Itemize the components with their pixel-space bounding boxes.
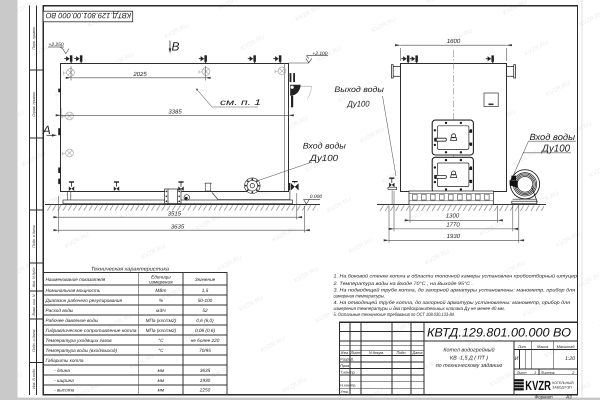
svg-text:+2.250: +2.250 <box>49 42 64 48</box>
svg-text:KVZR: KVZR <box>525 378 551 393</box>
svg-text:Подп. и дата: Подп. и дата <box>32 225 36 248</box>
svg-text:Лит.: Лит. <box>517 345 527 349</box>
svg-text:измерения температуры и два: измерения температуры и два предохраните… <box>334 306 506 312</box>
svg-text:1:20: 1:20 <box>565 356 575 362</box>
svg-text:Дата: Дата <box>411 351 422 355</box>
svg-text:N докум.: N докум. <box>369 351 384 355</box>
svg-text:1300: 1300 <box>446 212 460 219</box>
svg-text:Вход воды: Вход воды <box>530 132 576 142</box>
svg-text:Пров.: Пров. <box>340 364 350 368</box>
svg-text:1: 1 <box>534 371 536 375</box>
svg-text:МВт: МВт <box>155 288 166 293</box>
svg-text:Разраб.: Разраб. <box>340 357 354 361</box>
svg-text:1930: 1930 <box>447 233 461 240</box>
svg-text:Масса: Масса <box>537 345 548 349</box>
svg-text:Листов: Листов <box>540 371 555 375</box>
svg-text:А: А <box>42 123 51 137</box>
svg-text:Формат: Формат <box>535 395 553 400</box>
svg-text:Гидравлическое сопротивление к: Гидравлическое сопротивление котла <box>46 328 137 333</box>
svg-text:- длина: - длина <box>54 368 70 373</box>
svg-text:Номинальная мощность: Номинальная мощность <box>46 288 101 293</box>
svg-text:Наименование показателя: Наименование показателя <box>46 277 106 282</box>
svg-text:5. Остальные технические тр: 5. Остальные технические требования по О… <box>334 312 456 318</box>
svg-text:+2.100: +2.100 <box>312 51 327 57</box>
svg-text:1930: 1930 <box>200 378 211 383</box>
svg-text:Единицы: Единицы <box>151 274 171 279</box>
svg-text:%: % <box>159 298 163 303</box>
svg-text:Выход воды: Выход воды <box>334 85 384 94</box>
svg-text:3385: 3385 <box>168 109 182 116</box>
svg-text:Диапазон рабочего регулировани: Диапазон рабочего регулирования <box>45 298 123 303</box>
svg-text:Инв. N подл.: Инв. N подл. <box>32 368 36 389</box>
svg-text:КВТД.129.801.00.000 ВО: КВТД.129.801.00.000 ВО <box>46 11 132 20</box>
svg-text:мм: мм <box>158 388 165 393</box>
svg-text:мм: мм <box>158 368 165 373</box>
svg-text:КВ -1,5 Д ( ПТ ): КВ -1,5 Д ( ПТ ) <box>450 355 488 361</box>
svg-text:3635: 3635 <box>171 224 185 231</box>
svg-text:Расход воды: Расход воды <box>46 308 74 313</box>
svg-text:3. На подводящей трубе кот: 3. На подводящей трубе котла, до запорно… <box>334 288 576 294</box>
svg-text:Инв. N дубл.: Инв. N дубл. <box>32 267 36 288</box>
svg-text:Котел водогрейный: Котел водогрейный <box>443 348 494 354</box>
svg-text:2025: 2025 <box>132 71 147 78</box>
svg-text:- ширина: - ширина <box>54 378 74 383</box>
svg-text:КОТЕЛЬНЫЙ: КОТЕЛЬНЫЙ <box>552 380 574 385</box>
svg-text:- высота: - высота <box>54 388 75 393</box>
svg-text:Утв.: Утв. <box>340 390 349 394</box>
svg-text:измерения: измерения <box>149 280 173 285</box>
svg-text:2. Температура воды на Вхо: 2. Температура воды на Входе 70°С , на В… <box>332 281 473 287</box>
svg-text:см. п. 1: см. п. 1 <box>220 98 261 107</box>
svg-text:А3: А3 <box>565 395 572 400</box>
svg-text:0,06 (0,6): 0,06 (0,6) <box>195 328 216 333</box>
svg-text:КВТД.129.801.00.000 ВО: КВТД.129.801.00.000 ВО <box>427 326 572 340</box>
svg-text:Ду100: Ду100 <box>346 100 370 109</box>
svg-text:1. На боковой стенке котла: 1. На боковой стенке котла в области топ… <box>334 274 578 280</box>
svg-text:по техническому заданию: по техническому заданию <box>436 363 503 369</box>
svg-text:Значение: Значение <box>195 277 216 282</box>
svg-text:Изм.: Изм. <box>341 351 349 355</box>
svg-text:50-100: 50-100 <box>198 298 213 303</box>
svg-text:измерения температуры.: измерения температуры. <box>334 294 386 299</box>
svg-text:0.000: 0.000 <box>310 194 323 200</box>
svg-text:В: В <box>172 39 180 53</box>
svg-text:2250: 2250 <box>199 388 211 393</box>
svg-text:Рабочее давление воды: Рабочее давление воды <box>46 318 99 323</box>
svg-text:Температура воды (вход/выход): Температура воды (вход/выход) <box>46 348 118 353</box>
svg-text:Техническая характеристика: Техническая характеристика <box>91 266 169 272</box>
svg-text:МПа (кгс/см2): МПа (кгс/см2) <box>146 318 177 323</box>
svg-text:Взам. инв. N: Взам. инв. N <box>32 294 36 315</box>
svg-text:Справ. примен.: Справ. примен. <box>32 91 36 117</box>
svg-text:1600: 1600 <box>447 38 461 45</box>
svg-text:И: И <box>515 356 519 362</box>
svg-text:Ду100: Ду100 <box>309 153 338 163</box>
svg-text:52: 52 <box>202 308 208 313</box>
svg-text:ЗАВОД РЭП: ЗАВОД РЭП <box>552 386 572 390</box>
svg-text:Вход воды: Вход воды <box>303 142 346 151</box>
svg-text:Температура уходящих газов: Температура уходящих газов <box>46 338 113 343</box>
svg-text:1770: 1770 <box>446 221 460 228</box>
svg-text:Габариты котла: Габариты котла <box>46 358 84 363</box>
svg-text:1,5: 1,5 <box>202 288 209 293</box>
svg-text:3515: 3515 <box>168 211 182 218</box>
svg-text:Н.контр.: Н.контр. <box>340 384 356 388</box>
svg-text:0,6 (6,0): 0,6 (6,0) <box>196 318 214 323</box>
svg-text:МПа (кгс/см2): МПа (кгс/см2) <box>146 328 177 333</box>
svg-text:°С: °С <box>158 348 164 353</box>
svg-text:3635: 3635 <box>200 368 211 373</box>
svg-text:Подп.: Подп. <box>396 351 406 355</box>
svg-text:Т.контр.: Т.контр. <box>340 371 355 375</box>
svg-text:°С: °С <box>158 338 164 343</box>
svg-text:Масштаб: Масштаб <box>557 345 576 349</box>
svg-text:Перв. примен.: Перв. примен. <box>32 26 36 50</box>
svg-text:м3/ч: м3/ч <box>156 308 166 313</box>
svg-text:Лист: Лист <box>516 371 527 375</box>
svg-text:не более 220: не более 220 <box>191 338 220 343</box>
svg-text:мм: мм <box>158 378 165 383</box>
svg-text:70/95: 70/95 <box>199 348 211 353</box>
svg-text:4. На отводящей трубе котл: 4. На отводящей трубе котла, до запорной… <box>334 300 571 306</box>
svg-text:Подп. и дата: Подп. и дата <box>32 329 36 352</box>
svg-text:Лист: Лист <box>350 351 361 355</box>
